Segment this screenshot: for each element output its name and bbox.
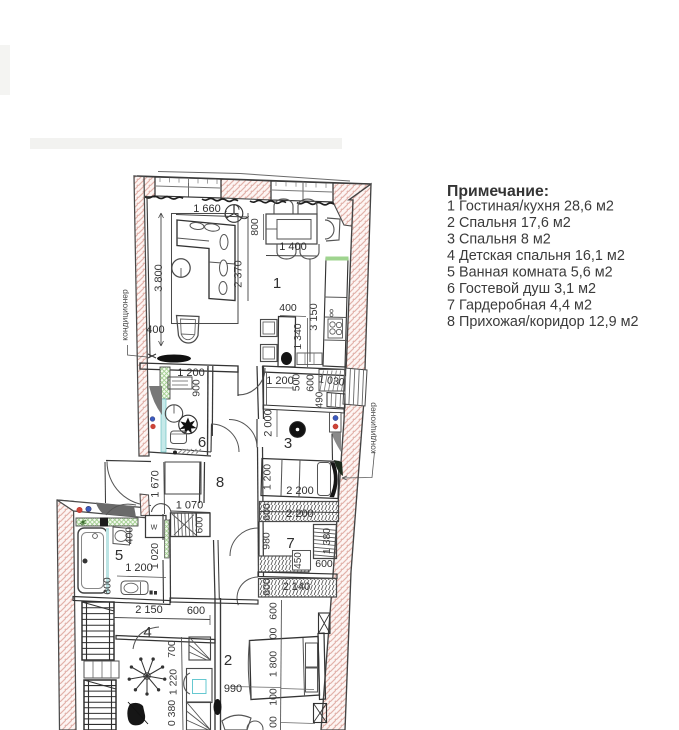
- svg-text:1 340: 1 340: [292, 323, 304, 349]
- svg-text:400: 400: [279, 302, 297, 314]
- svg-text:3 Спальня 8 м2: 3 Спальня 8 м2: [447, 232, 551, 248]
- svg-text:6 Гостевой душ 3,1 м2: 6 Гостевой душ 3,1 м2: [447, 281, 596, 297]
- svg-text:400: 400: [124, 527, 136, 545]
- svg-text:кондиционер: кондиционер: [120, 289, 130, 341]
- svg-text:600: 600: [305, 374, 317, 392]
- svg-text:2: 2: [224, 652, 232, 669]
- svg-text:2 140: 2 140: [283, 581, 311, 593]
- svg-text:2 370: 2 370: [233, 260, 245, 288]
- svg-text:2 000: 2 000: [263, 409, 275, 437]
- svg-text:400: 400: [146, 324, 164, 336]
- svg-text:1: 1: [273, 275, 281, 292]
- svg-text:900: 900: [191, 379, 203, 397]
- svg-text:w: w: [150, 522, 158, 532]
- svg-text:600: 600: [268, 602, 280, 620]
- svg-text:450: 450: [293, 552, 304, 569]
- svg-text:4 Детская спальня 16,1 м2: 4 Детская спальня 16,1 м2: [447, 248, 625, 264]
- svg-text:5: 5: [115, 547, 123, 564]
- svg-text:700: 700: [166, 640, 178, 658]
- svg-text:600: 600: [195, 516, 206, 533]
- svg-text:490: 490: [315, 391, 326, 408]
- svg-text:2 200: 2 200: [286, 485, 314, 497]
- svg-text:1 220: 1 220: [168, 669, 180, 695]
- svg-text:1 800: 1 800: [268, 651, 280, 677]
- svg-text:2 200: 2 200: [286, 508, 314, 520]
- svg-text:600: 600: [261, 503, 273, 521]
- svg-text:00: 00: [268, 716, 280, 728]
- svg-text:1 070: 1 070: [176, 500, 204, 512]
- svg-text:1 400: 1 400: [279, 241, 307, 253]
- svg-text:600: 600: [187, 605, 205, 617]
- svg-text:990: 990: [224, 683, 242, 695]
- svg-text:100: 100: [268, 688, 280, 706]
- svg-text:1 200: 1 200: [125, 562, 153, 574]
- svg-text:3: 3: [284, 435, 292, 452]
- svg-text:1 Гостиная/кухня 28,6 м2: 1 Гостиная/кухня 28,6 м2: [447, 199, 614, 215]
- svg-text:1 380: 1 380: [321, 528, 333, 554]
- svg-text:кондиционер: кондиционер: [368, 402, 378, 454]
- svg-text:3 800: 3 800: [153, 264, 165, 292]
- svg-text:7: 7: [286, 535, 294, 552]
- svg-text:0 380: 0 380: [166, 700, 178, 726]
- svg-text:Примечание:: Примечание:: [447, 183, 549, 200]
- svg-text:6: 6: [198, 434, 206, 451]
- svg-text:2 Спальня 17,6 м2: 2 Спальня 17,6 м2: [447, 215, 571, 231]
- svg-text:1 200: 1 200: [262, 464, 274, 490]
- svg-text:600: 600: [102, 577, 114, 595]
- svg-text:800: 800: [249, 218, 261, 236]
- svg-text:600: 600: [315, 558, 333, 570]
- svg-text:5 Ванная комната 5,6 м2: 5 Ванная комната 5,6 м2: [447, 265, 613, 281]
- svg-text:1 660: 1 660: [193, 203, 221, 215]
- svg-text:7 Гардеробная 4,4 м2: 7 Гардеробная 4,4 м2: [447, 298, 592, 314]
- svg-text:1 200: 1 200: [177, 367, 205, 379]
- svg-text:1 670: 1 670: [150, 470, 162, 498]
- svg-text:8 Прихожая/коридор 12,9 м2: 8 Прихожая/коридор 12,9 м2: [447, 314, 639, 330]
- svg-text:600: 600: [261, 578, 273, 596]
- svg-text:980: 980: [261, 532, 273, 550]
- svg-text:00: 00: [268, 628, 280, 640]
- svg-text:500: 500: [291, 374, 303, 392]
- svg-text:1 030: 1 030: [318, 373, 346, 389]
- svg-text:8: 8: [216, 474, 224, 491]
- svg-text:4: 4: [143, 624, 151, 641]
- svg-text:2 150: 2 150: [135, 604, 163, 616]
